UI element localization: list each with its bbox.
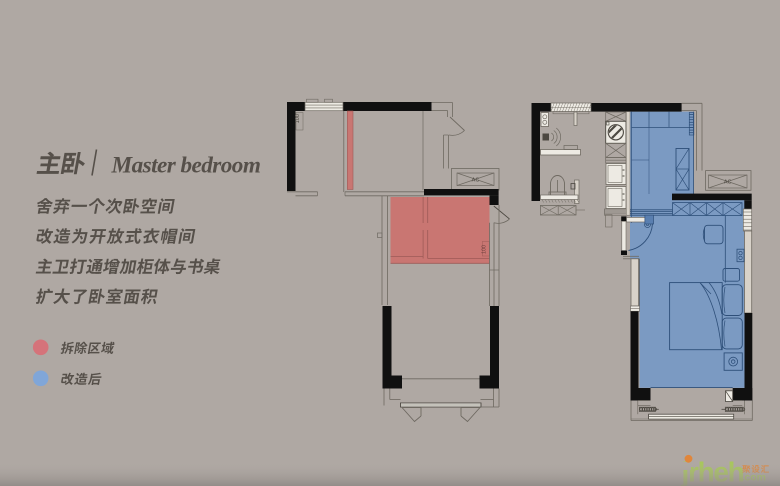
svg-text:100: 100 [482,245,488,254]
svg-text:AC: AC [472,178,480,184]
svg-text:AC: AC [724,180,732,186]
svg-text:Master bedroom: Master bedroom [111,152,261,178]
